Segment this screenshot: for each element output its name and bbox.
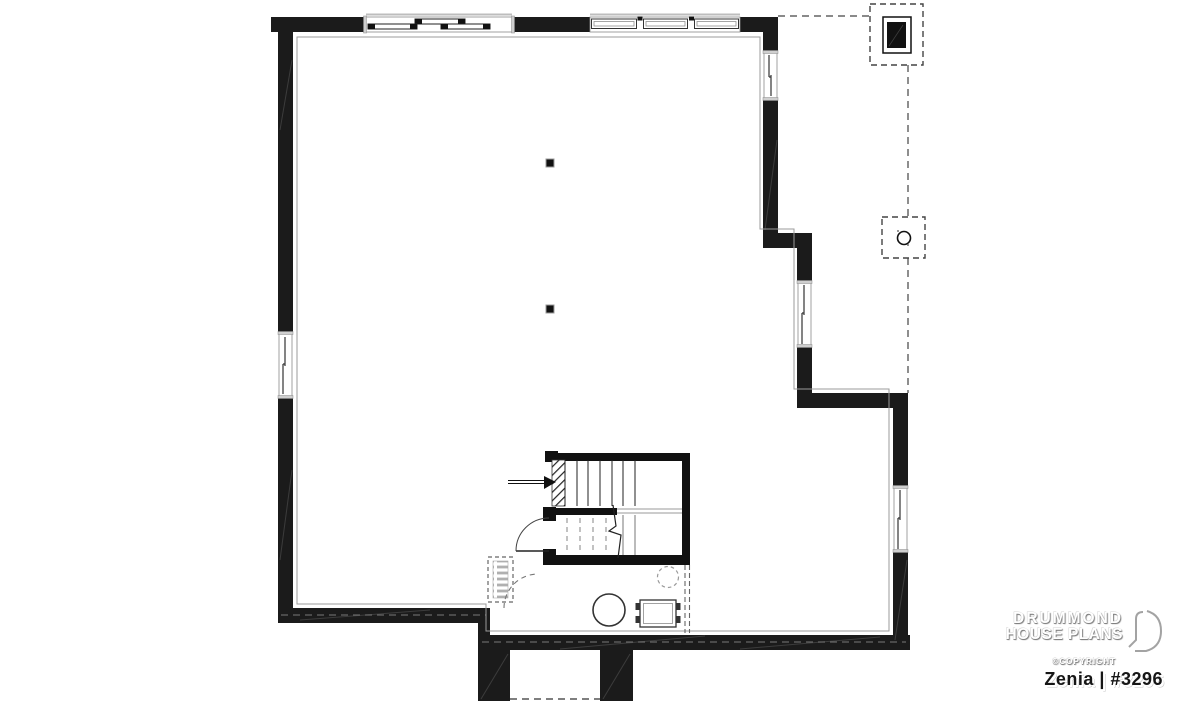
left-sliding-window [278,332,293,399]
top-triple-window [590,15,740,33]
future-wall-dashed [685,565,690,633]
steel-column-2 [546,305,554,313]
staircase [543,451,690,565]
copyright-label: ©COPYRIGHT [983,657,1116,666]
future-door-swing-dashed [504,574,538,608]
steel-columns [546,159,554,313]
laundry-tub [636,600,681,627]
future-fixture-dashed [488,557,513,602]
drummond-branding-block: DRUMMOND HOUSE PLANS ©COPYRIGHT Zenia | … [983,599,1163,690]
right-middle-window [797,281,812,348]
support-post-dashed-box [882,65,925,393]
stair-direction-arrow [508,476,556,489]
steel-column-1 [546,159,554,167]
fireplace-foundation-dashed [778,4,923,65]
floor-plan-canvas: DRUMMOND HOUSE PLANS ©COPYRIGHT Zenia | … [0,0,1200,711]
right-lower-window [893,486,908,553]
plan-title: Zenia | #3296 [983,669,1163,690]
right-upper-window [763,51,778,101]
top-sliding-window [364,15,515,34]
stair-door-swing [516,518,549,551]
round-fixture [593,594,625,626]
brand-line1: DRUMMOND [1006,611,1123,627]
brand-wordmark: DRUMMOND HOUSE PLANS [1006,611,1123,643]
brand-line2: HOUSE PLANS [1006,627,1123,643]
foundation-piers [478,650,633,701]
floor-drain-dashed-circle [658,567,679,588]
drummond-d-logo-icon [1125,610,1163,656]
